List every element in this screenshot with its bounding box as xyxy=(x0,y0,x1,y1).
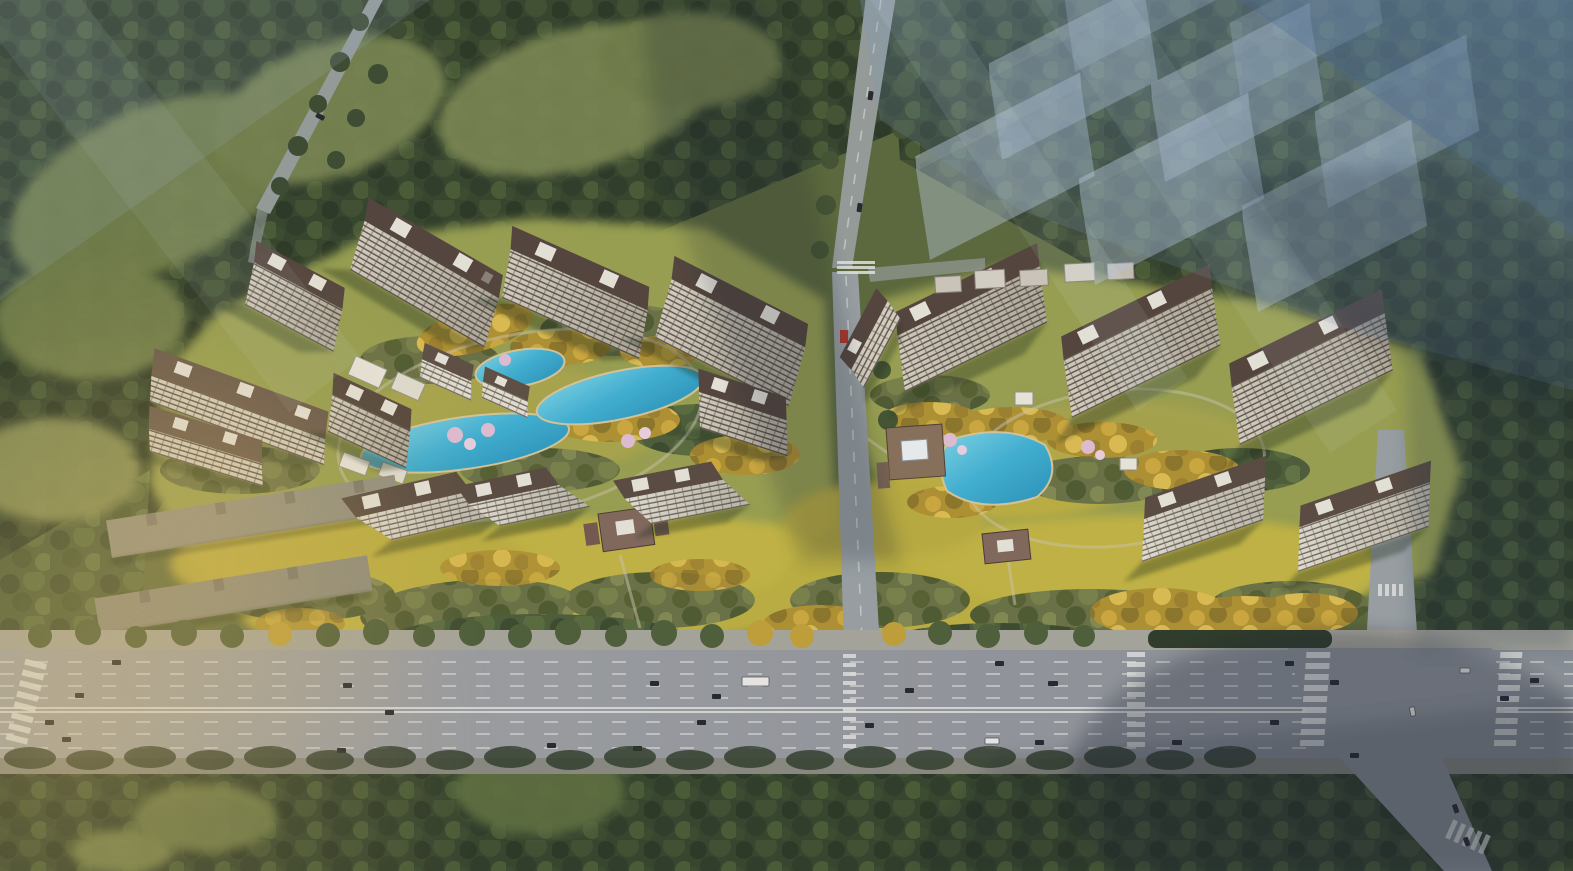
render-canvas: Aerial rendering of a high-rise resident… xyxy=(0,0,1573,871)
atmosphere xyxy=(0,0,1573,871)
global-cool-grade xyxy=(0,0,1573,871)
aerial-render: Bird's-eye architectural rendering: two … xyxy=(0,0,1573,871)
